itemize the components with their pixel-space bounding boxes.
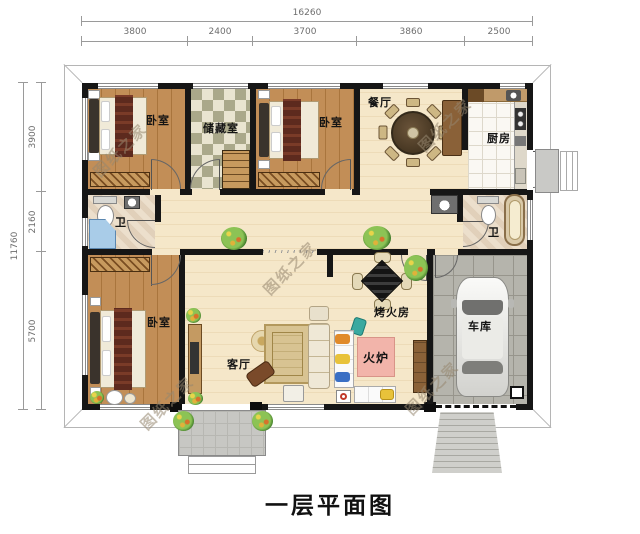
dim-tick xyxy=(36,82,46,83)
burner-ring xyxy=(340,393,347,400)
dim-left-seg-2: 2160 xyxy=(28,211,38,234)
dim-top-seg-2: 2400 xyxy=(209,27,232,37)
plan-title: 一层平面图 xyxy=(265,486,395,520)
kitchen-stove xyxy=(515,108,526,130)
wall-interior xyxy=(82,189,150,195)
dim-top-seg-5: 2500 xyxy=(488,27,511,37)
room-label-bedroom-top-left: 卧室 xyxy=(146,112,170,128)
stove-label: 火炉 xyxy=(363,349,389,366)
bathroom-sink xyxy=(124,196,140,209)
dim-tick xyxy=(36,409,46,410)
room-label-garage: 车库 xyxy=(468,318,492,334)
side-table-round xyxy=(124,393,136,404)
wardrobe xyxy=(90,257,150,272)
nightstand xyxy=(258,160,270,169)
pillow xyxy=(271,132,281,152)
room-label-fire-room: 烤火房 xyxy=(374,304,410,320)
kitchen-cabinet xyxy=(468,89,484,102)
bed-runner-rug xyxy=(283,99,301,161)
room-label-bedroom-bottom: 卧室 xyxy=(147,314,171,330)
dim-tick xyxy=(356,36,357,46)
dim-line xyxy=(82,41,533,42)
dim-tick xyxy=(36,191,46,192)
wall-interior xyxy=(82,249,152,255)
kitchen-fridge xyxy=(515,168,526,184)
coffee-table xyxy=(283,385,304,402)
floor-plan-canvas: 16260 3800 2400 3700 3860 2500 11760 390… xyxy=(0,0,640,534)
bed-headboard xyxy=(259,103,269,157)
dining-chair xyxy=(406,158,420,167)
wall-interior xyxy=(180,249,263,255)
room-label-bath-right: 卫 xyxy=(488,224,500,240)
bathtub-basin xyxy=(509,200,521,240)
wall-interior xyxy=(458,249,527,255)
pillow-yellow xyxy=(380,389,394,400)
dining-chair xyxy=(406,98,420,107)
room-label-living: 客厅 xyxy=(227,356,251,372)
dim-tick xyxy=(464,36,465,46)
dim-line xyxy=(82,21,533,22)
window xyxy=(268,83,340,89)
pillow-yellow xyxy=(335,354,350,364)
window xyxy=(383,83,428,89)
area-rug-pattern xyxy=(272,332,303,376)
dim-tick xyxy=(81,16,82,26)
armchair xyxy=(309,306,329,321)
staircase xyxy=(222,150,250,189)
dim-left-seg-3: 5700 xyxy=(28,320,38,343)
potted-plant xyxy=(90,391,104,404)
car-windshield xyxy=(462,300,503,315)
window xyxy=(527,200,533,240)
pillow xyxy=(271,106,281,126)
dim-line xyxy=(41,83,42,410)
dim-tick xyxy=(532,36,533,46)
room-label-kitchen: 厨房 xyxy=(487,130,511,146)
nightstand xyxy=(90,297,101,306)
garage-ramp-steps xyxy=(432,412,502,473)
dim-tick xyxy=(18,82,28,83)
entry-bush xyxy=(252,411,273,431)
pillow xyxy=(101,101,110,122)
potted-plant xyxy=(363,226,391,250)
toilet-bowl xyxy=(481,205,496,225)
car-rear-window xyxy=(462,361,503,374)
wall-interior xyxy=(354,89,360,189)
wall-interior xyxy=(352,189,360,195)
dim-tick xyxy=(252,36,253,46)
kitchen-side-porch xyxy=(535,149,559,193)
pillow-orange xyxy=(335,334,350,344)
room-label-dining: 餐厅 xyxy=(368,94,392,110)
potted-plant xyxy=(404,255,428,281)
bed-headboard xyxy=(89,99,99,153)
chair-round xyxy=(106,390,123,405)
window xyxy=(82,218,88,246)
garage-door-dashed xyxy=(436,405,516,408)
tv xyxy=(190,342,199,374)
window xyxy=(98,83,158,89)
potted-plant xyxy=(221,227,247,250)
dim-left-total: 11760 xyxy=(10,232,20,261)
wall-interior xyxy=(155,195,161,222)
pillow xyxy=(102,316,111,342)
dim-top-seg-1: 3800 xyxy=(124,27,147,37)
dim-tick xyxy=(81,36,82,46)
entry-bush xyxy=(173,411,194,431)
dim-tick xyxy=(36,251,46,252)
toilet-tank xyxy=(93,196,117,204)
room-label-bedroom-top-middle: 卧室 xyxy=(319,114,343,130)
wall-interior xyxy=(220,189,325,195)
room-label-storage: 储藏室 xyxy=(203,120,239,136)
wall-interior xyxy=(185,89,191,189)
entry-steps xyxy=(188,456,256,474)
dim-tick xyxy=(187,36,188,46)
car-mirror xyxy=(451,299,457,308)
dim-top-total: 16260 xyxy=(293,8,322,18)
stove-pad: 火炉 xyxy=(357,337,395,377)
window xyxy=(193,83,248,89)
wall-exterior-right xyxy=(527,83,533,410)
dining-chair xyxy=(379,126,388,140)
wall-interior xyxy=(180,189,192,195)
pillow xyxy=(102,350,111,376)
wash-basin-counter xyxy=(431,195,458,214)
window xyxy=(82,295,88,375)
window xyxy=(100,404,150,410)
room-label-bath-left: 卫 xyxy=(115,214,127,230)
bed-runner-rug xyxy=(114,308,132,390)
garage-drain xyxy=(510,386,524,399)
car-mirror xyxy=(508,299,514,308)
toilet-tank xyxy=(477,196,499,204)
nightstand xyxy=(258,90,270,99)
dim-tick xyxy=(18,409,28,410)
window xyxy=(82,98,88,160)
kitchen-side-steps xyxy=(560,151,578,191)
wall-exterior-bottom xyxy=(82,404,100,410)
dim-top-seg-3: 3700 xyxy=(294,27,317,37)
wall-interior xyxy=(250,89,256,189)
dim-tick xyxy=(532,16,533,26)
wardrobe xyxy=(258,172,320,187)
bed-headboard xyxy=(90,312,100,384)
potted-plant xyxy=(186,308,201,323)
window xyxy=(268,404,324,410)
wall-exterior-bottom xyxy=(516,404,533,410)
sofa xyxy=(308,323,330,389)
wall-interior xyxy=(327,255,333,277)
kitchen-appliance xyxy=(515,136,526,146)
dim-top-seg-4: 3860 xyxy=(400,27,423,37)
dim-left-seg-1: 3900 xyxy=(28,126,38,149)
dim-line xyxy=(23,83,24,410)
kitchen-sink xyxy=(506,90,521,101)
pillow-blue xyxy=(335,372,350,382)
